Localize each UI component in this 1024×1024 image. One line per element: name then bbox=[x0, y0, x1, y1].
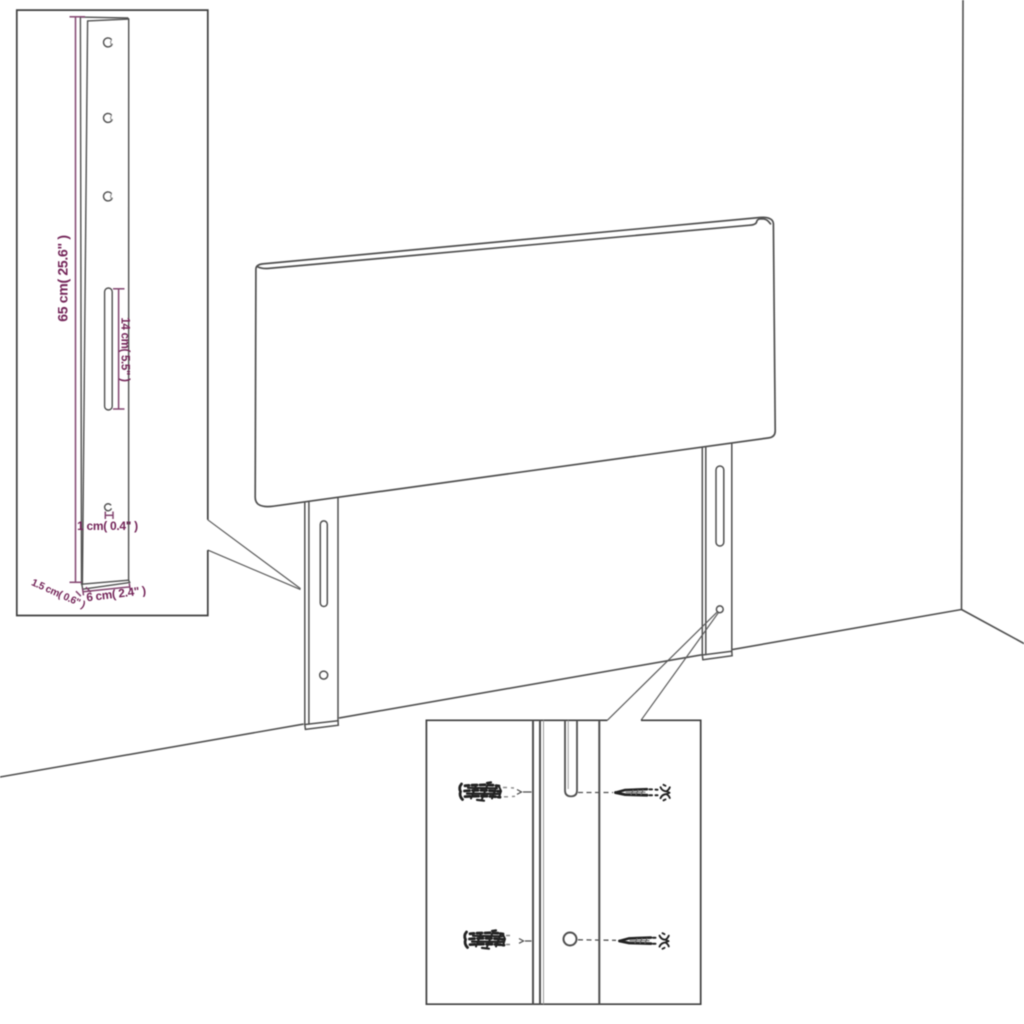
svg-text:14 cm( 5.5" ): 14 cm( 5.5" ) bbox=[119, 317, 131, 382]
svg-text:1 cm( 0.4" ): 1 cm( 0.4" ) bbox=[77, 519, 138, 533]
svg-text:65 cm( 25.6" ): 65 cm( 25.6" ) bbox=[55, 235, 71, 322]
